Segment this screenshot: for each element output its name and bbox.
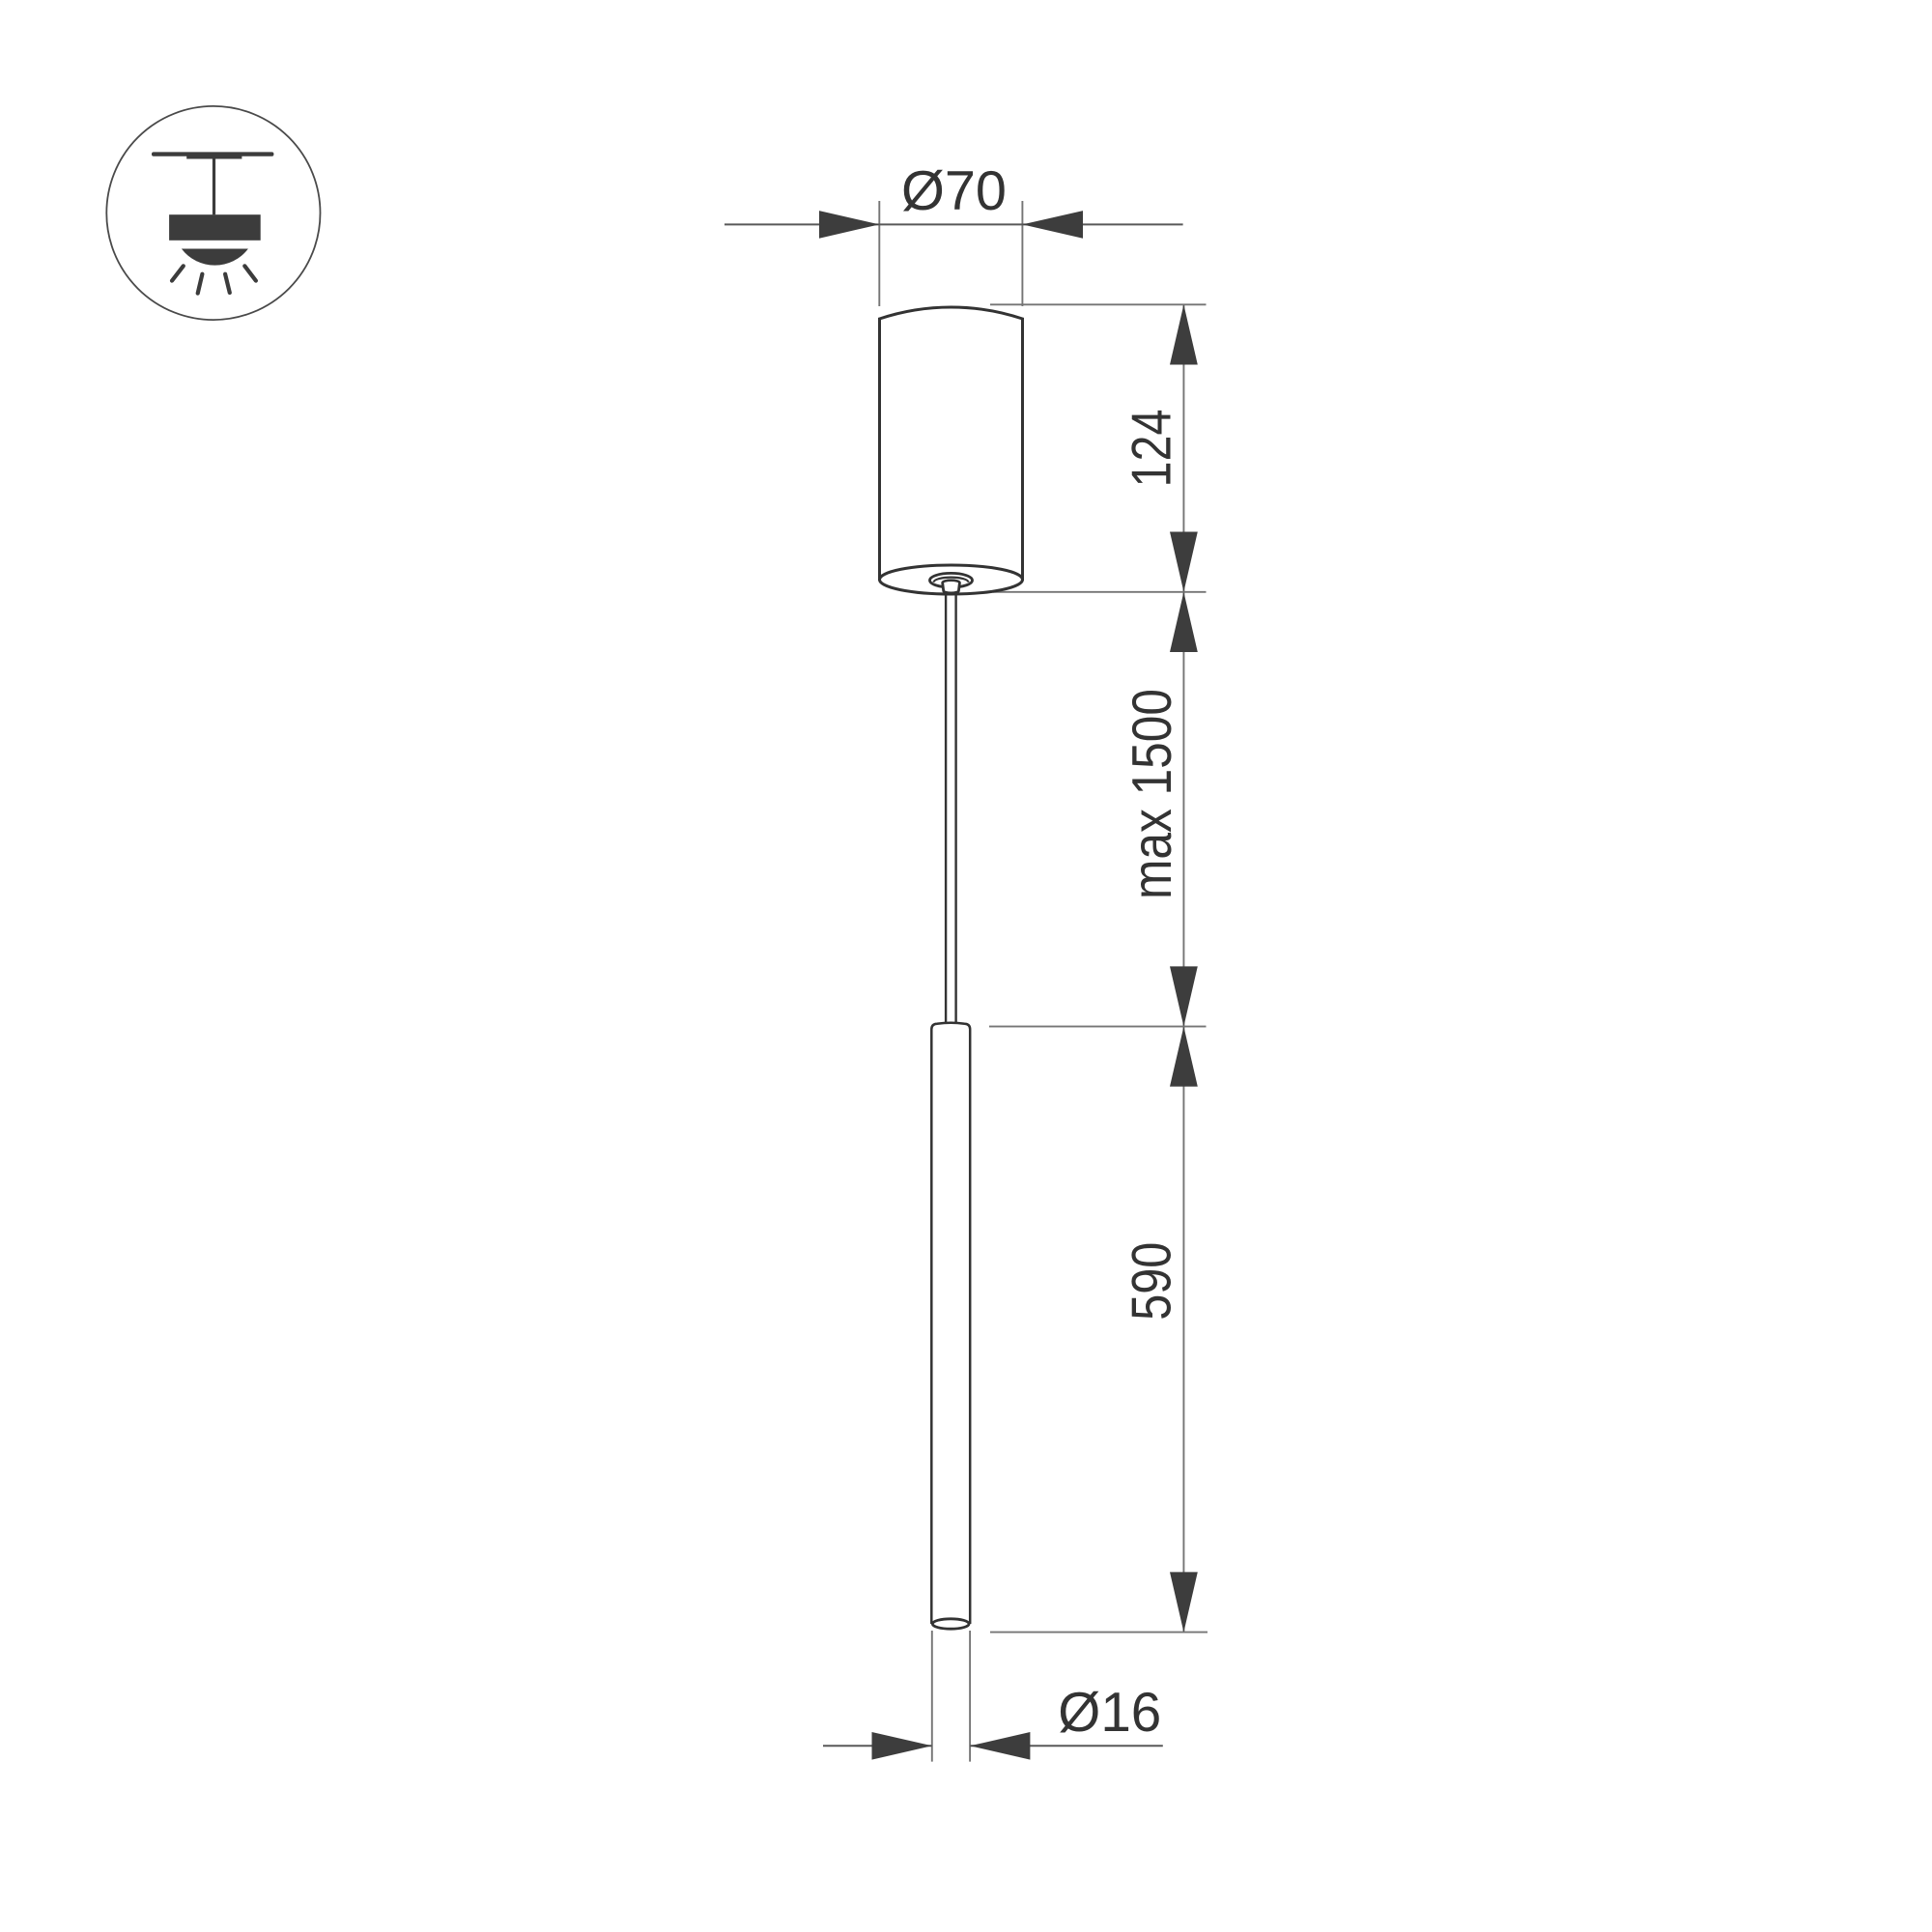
svg-text:590: 590 [1121, 1242, 1182, 1321]
svg-text:Ø70: Ø70 [901, 160, 1007, 222]
svg-text:max 1500: max 1500 [1122, 689, 1183, 899]
svg-text:124: 124 [1121, 410, 1182, 488]
svg-text:Ø16: Ø16 [1058, 1682, 1161, 1744]
